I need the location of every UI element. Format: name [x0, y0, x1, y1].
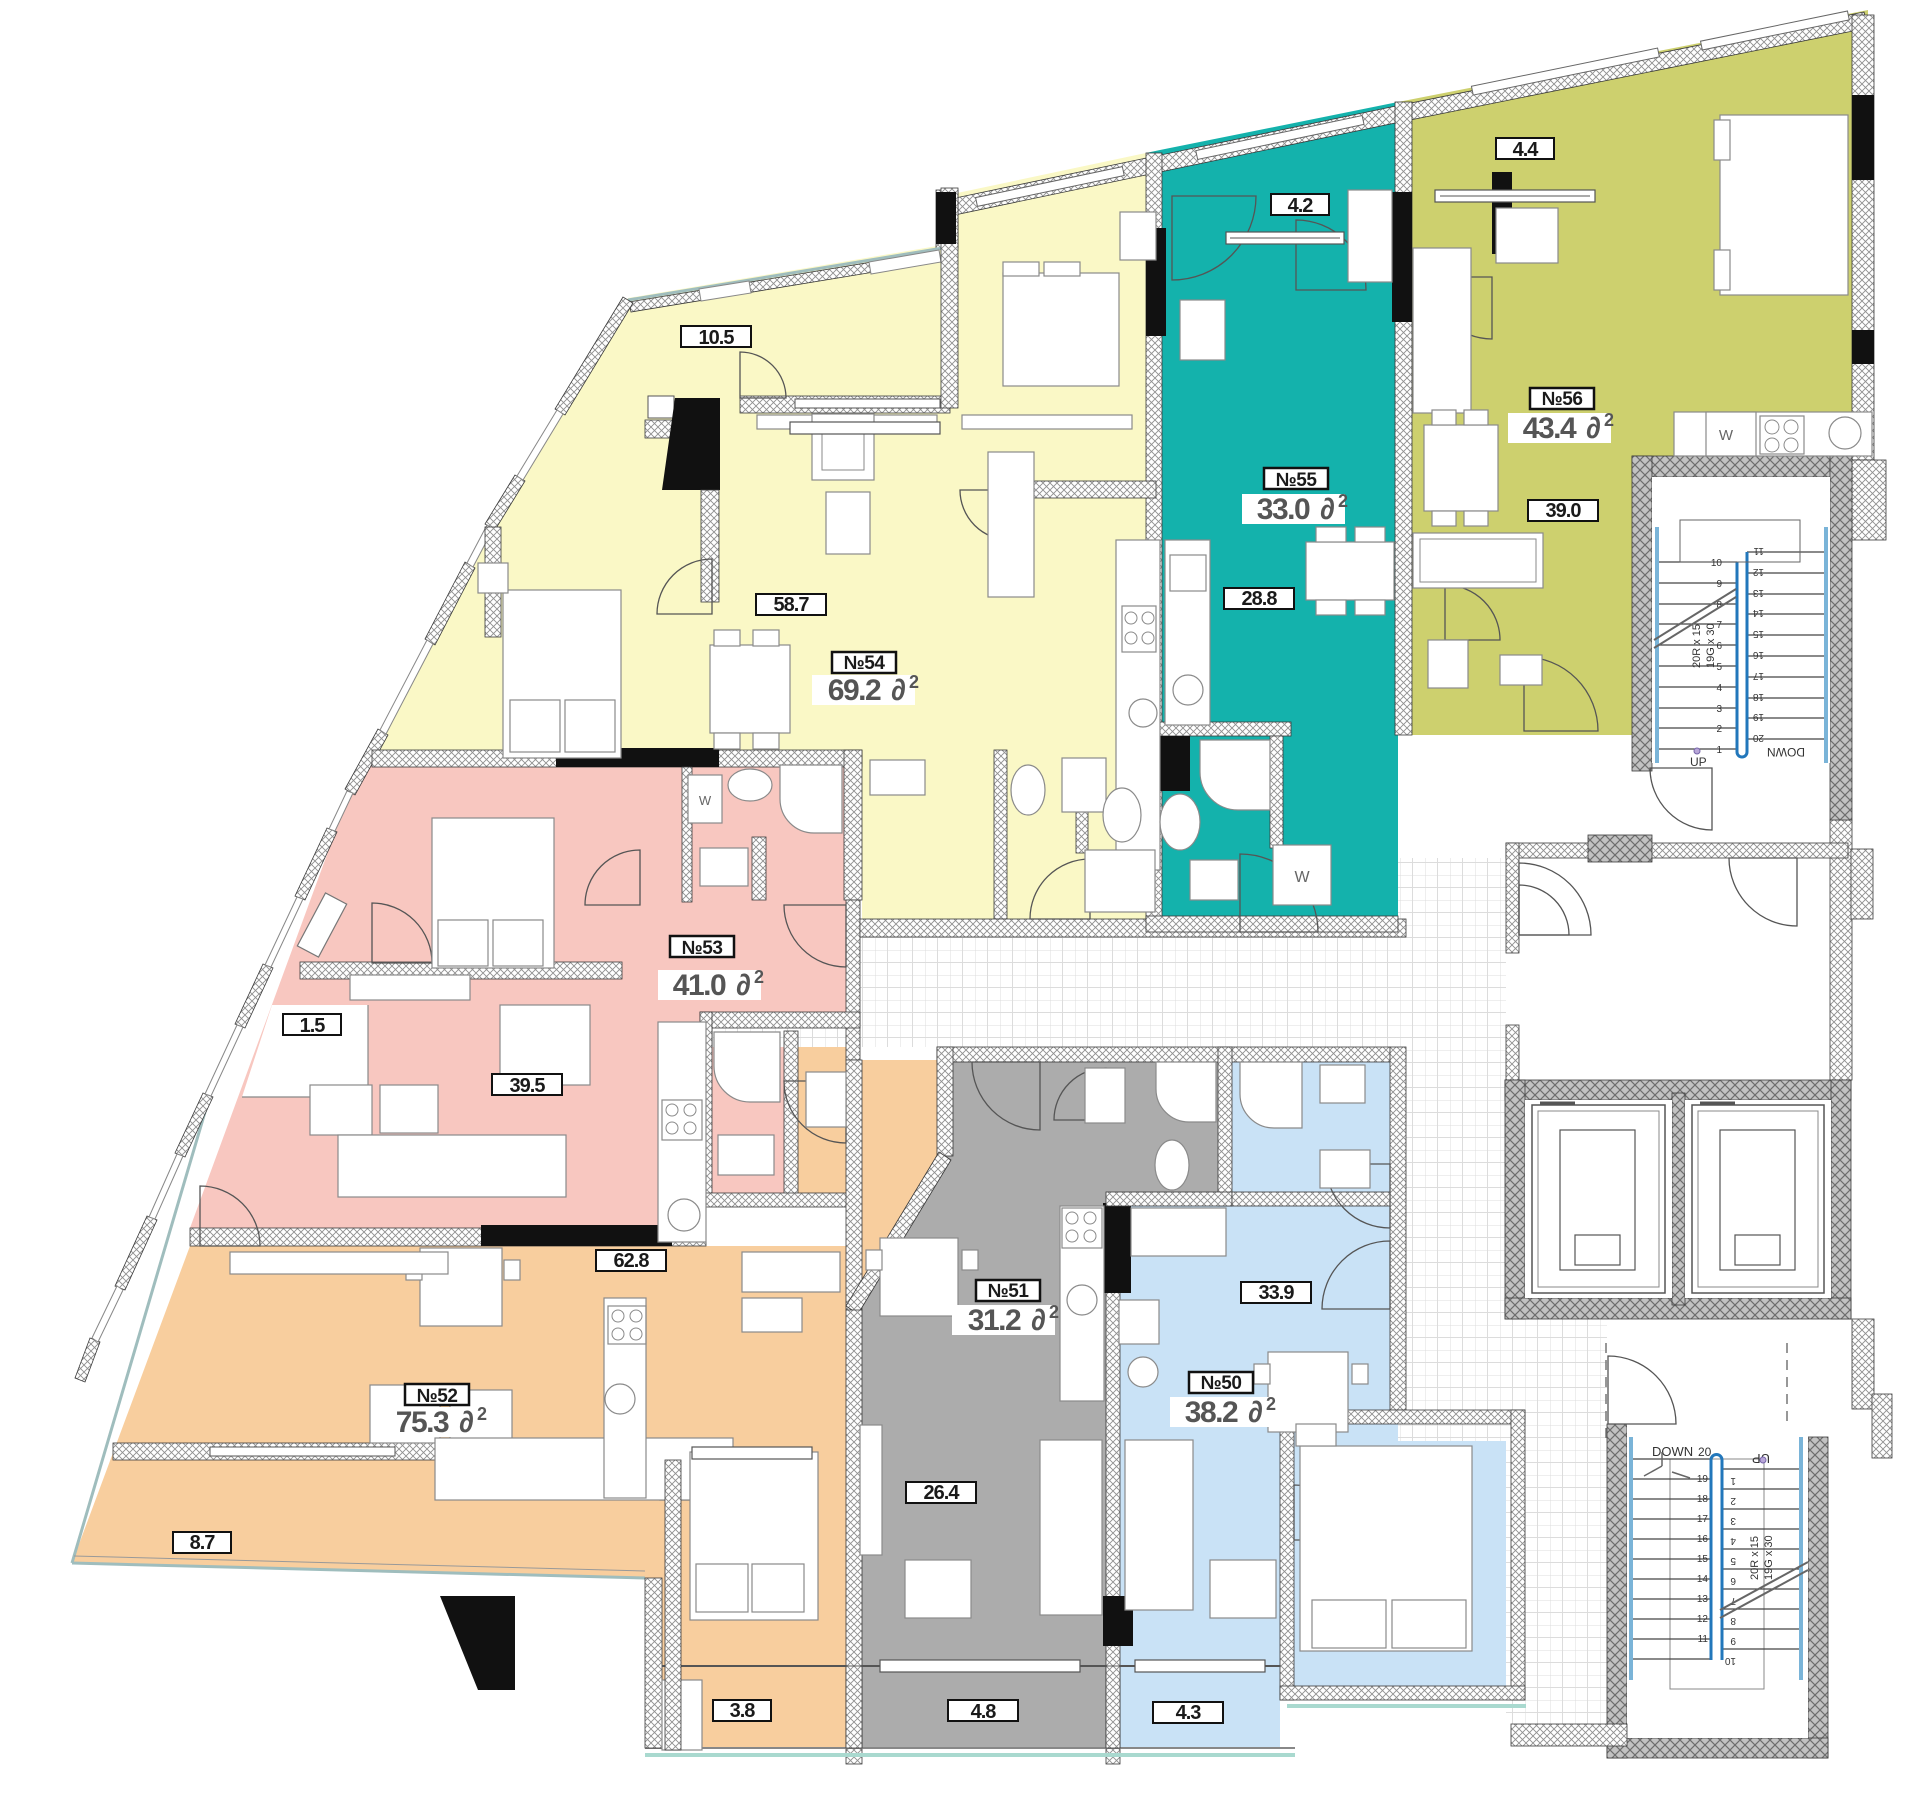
svg-text:18: 18: [1697, 1494, 1709, 1505]
svg-text:11: 11: [1753, 545, 1764, 556]
svg-text:62.8: 62.8: [614, 1250, 650, 1272]
svg-text:2: 2: [1730, 1495, 1736, 1506]
svg-text:20: 20: [1752, 732, 1764, 743]
svg-text:DOWN: DOWN: [1767, 745, 1805, 759]
svg-text:4.8: 4.8: [971, 1701, 997, 1723]
svg-text:16: 16: [1752, 649, 1764, 660]
svg-text:2: 2: [754, 967, 764, 987]
svg-text:3: 3: [1716, 704, 1722, 715]
svg-text:5: 5: [1716, 662, 1722, 673]
svg-text:20R x 15: 20R x 15: [1691, 624, 1703, 668]
svg-text:19G x 30: 19G x 30: [1705, 623, 1717, 668]
svg-text:41.0: 41.0: [673, 969, 726, 1002]
svg-text:12: 12: [1697, 1614, 1709, 1625]
svg-text:9: 9: [1716, 579, 1722, 590]
svg-text:69.2: 69.2: [828, 674, 881, 707]
svg-text:∂: ∂: [1320, 493, 1334, 526]
svg-text:38.2: 38.2: [1185, 1396, 1238, 1429]
svg-text:31.2: 31.2: [968, 1304, 1021, 1337]
svg-text:16: 16: [1697, 1534, 1709, 1545]
svg-text:∂: ∂: [736, 969, 750, 1002]
svg-text:∂: ∂: [1031, 1304, 1045, 1337]
svg-text:14: 14: [1752, 607, 1764, 618]
svg-text:3: 3: [1730, 1515, 1736, 1526]
svg-text:№55: №55: [1276, 470, 1318, 491]
svg-text:6: 6: [1730, 1575, 1736, 1586]
svg-text:10: 10: [1724, 1655, 1736, 1666]
svg-text:5: 5: [1730, 1555, 1736, 1566]
svg-text:2: 2: [1716, 724, 1722, 735]
svg-text:12: 12: [1752, 566, 1764, 577]
svg-text:∂: ∂: [1586, 412, 1600, 445]
svg-text:28.8: 28.8: [1242, 588, 1278, 610]
svg-text:7: 7: [1716, 620, 1722, 631]
svg-text:58.7: 58.7: [774, 594, 810, 616]
svg-text:8: 8: [1730, 1615, 1736, 1626]
svg-text:8.7: 8.7: [190, 1532, 216, 1554]
svg-text:19: 19: [1752, 711, 1764, 722]
svg-text:W: W: [699, 793, 712, 808]
svg-text:3.8: 3.8: [730, 1700, 756, 1722]
svg-text:4: 4: [1716, 683, 1722, 694]
svg-text:∂: ∂: [1248, 1396, 1262, 1429]
svg-text:26.4: 26.4: [924, 1482, 961, 1504]
svg-text:19G x 30: 19G x 30: [1763, 1535, 1775, 1580]
svg-text:№51: №51: [988, 1281, 1030, 1302]
svg-text:17: 17: [1697, 1514, 1709, 1525]
svg-text:UP: UP: [1690, 755, 1707, 769]
svg-text:DOWN: DOWN: [1652, 1444, 1693, 1459]
svg-text:43.4: 43.4: [1523, 412, 1577, 445]
svg-text:1: 1: [1730, 1475, 1736, 1486]
svg-text:№50: №50: [1201, 1373, 1242, 1394]
svg-text:2: 2: [1604, 410, 1614, 430]
svg-text:№54: №54: [844, 653, 886, 674]
svg-text:№52: №52: [417, 1386, 458, 1407]
svg-text:39.0: 39.0: [1546, 500, 1582, 522]
svg-text:4.4: 4.4: [1513, 139, 1540, 161]
svg-text:∂: ∂: [459, 1406, 473, 1439]
svg-text:11: 11: [1698, 1634, 1709, 1645]
svg-text:W: W: [1294, 869, 1310, 886]
svg-text:33.0: 33.0: [1257, 493, 1310, 526]
svg-text:33.9: 33.9: [1259, 1282, 1295, 1304]
svg-text:№53: №53: [682, 938, 723, 959]
svg-text:14: 14: [1697, 1574, 1709, 1585]
svg-text:75.3: 75.3: [396, 1406, 449, 1439]
svg-text:13: 13: [1697, 1594, 1709, 1605]
svg-text:20: 20: [1698, 1445, 1712, 1459]
svg-text:18: 18: [1752, 691, 1764, 702]
svg-text:20R x 15: 20R x 15: [1749, 1536, 1761, 1580]
svg-text:6: 6: [1716, 641, 1722, 652]
svg-text:15: 15: [1697, 1554, 1709, 1565]
svg-text:2: 2: [477, 1404, 487, 1424]
svg-text:4.3: 4.3: [1176, 1702, 1202, 1724]
svg-text:1: 1: [1716, 745, 1722, 756]
svg-text:№56: №56: [1542, 389, 1583, 410]
svg-text:10: 10: [1711, 558, 1723, 569]
svg-text:4.2: 4.2: [1288, 195, 1314, 217]
svg-text:2: 2: [1266, 1394, 1276, 1414]
svg-text:15: 15: [1752, 628, 1764, 639]
svg-text:2: 2: [909, 672, 919, 692]
svg-text:1.5: 1.5: [300, 1015, 326, 1037]
svg-text:13: 13: [1752, 587, 1764, 598]
svg-text:4: 4: [1730, 1535, 1736, 1546]
svg-text:9: 9: [1730, 1635, 1736, 1646]
svg-text:17: 17: [1752, 670, 1764, 681]
svg-text:W: W: [1719, 427, 1734, 444]
svg-text:2: 2: [1049, 1302, 1059, 1322]
svg-text:39.5: 39.5: [510, 1075, 546, 1097]
svg-text:19: 19: [1697, 1474, 1709, 1485]
svg-text:2: 2: [1338, 491, 1348, 511]
svg-text:∂: ∂: [891, 674, 905, 707]
svg-text:10.5: 10.5: [699, 327, 735, 349]
